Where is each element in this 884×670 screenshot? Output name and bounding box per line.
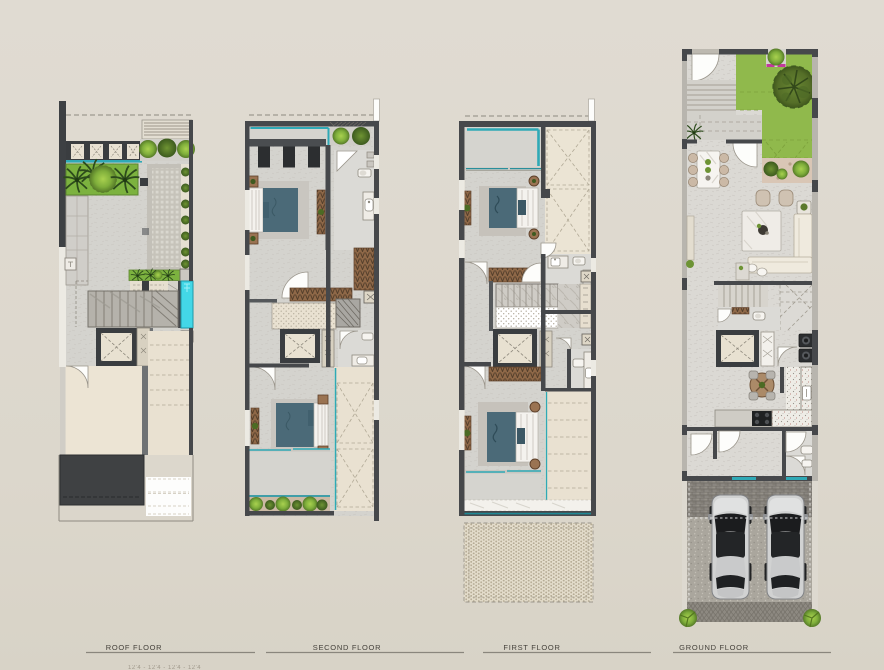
svg-text:FIRST FLOOR: FIRST FLOOR (503, 643, 560, 652)
svg-text:GROUND FLOOR: GROUND FLOOR (679, 643, 749, 652)
svg-text:12'4 - 12'4 - 12'4 - 12'4: 12'4 - 12'4 - 12'4 - 12'4 (128, 665, 201, 670)
svg-text:ROOF FLOOR: ROOF FLOOR (106, 643, 163, 652)
svg-text:SECOND FLOOR: SECOND FLOOR (313, 643, 381, 652)
